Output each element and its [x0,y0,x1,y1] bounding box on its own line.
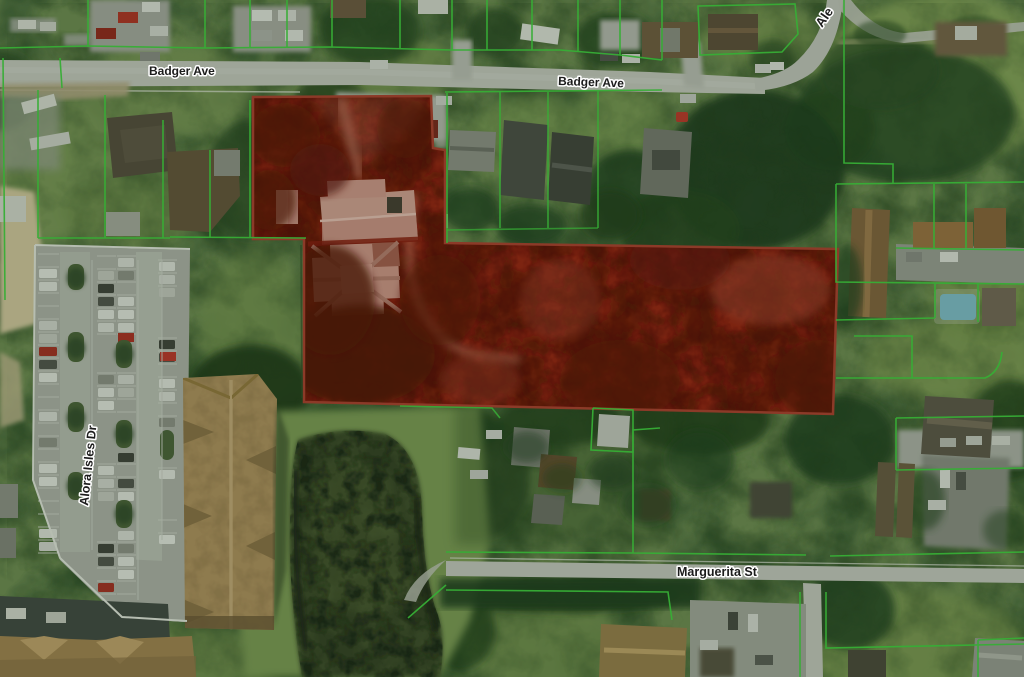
svg-text:Badger Ave: Badger Ave [558,74,625,90]
svg-text:Marguerita St: Marguerita St [677,565,758,579]
svg-text:Badger Ave: Badger Ave [149,64,215,78]
